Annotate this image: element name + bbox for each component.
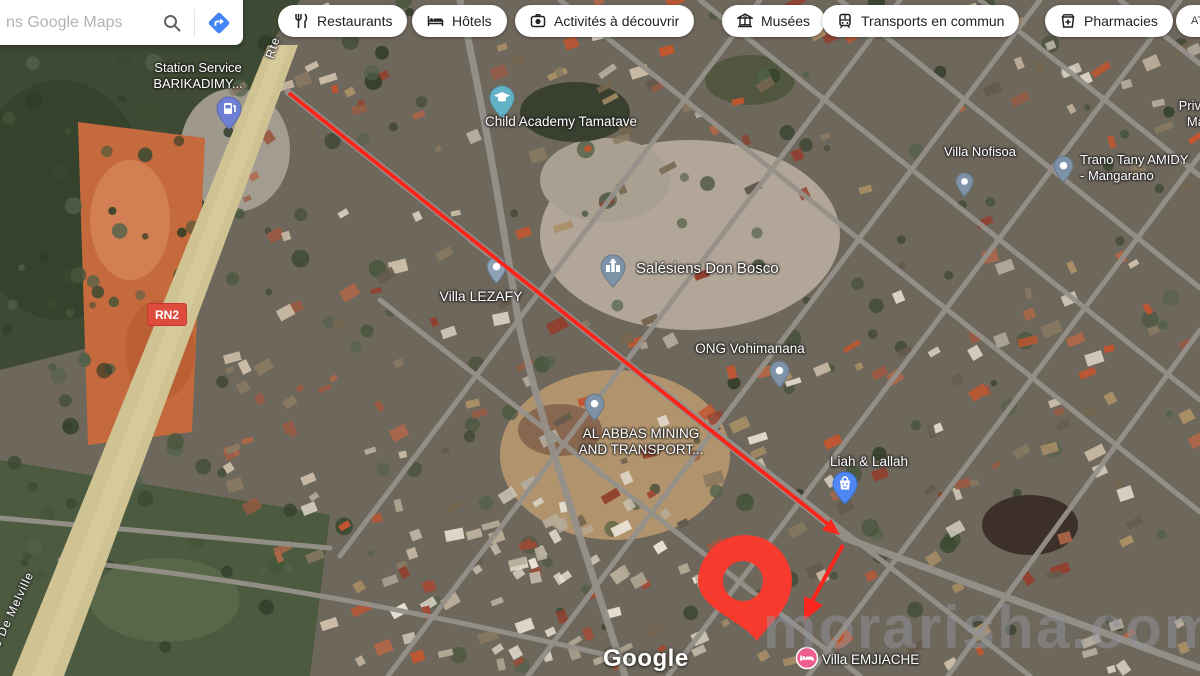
poi-label: Mahat (1187, 114, 1200, 129)
satellite-map-canvas[interactable] (0, 0, 1200, 676)
generic-pin-icon[interactable] (486, 256, 507, 285)
chip-label: Musées (761, 13, 810, 29)
poi-label: Private S (1179, 98, 1200, 113)
poi-salesiens-don-bosco[interactable]: Salésiens Don Bosco (636, 260, 779, 278)
poi-label: Child Academy Tamatave (485, 114, 637, 129)
chip-label: Transports en commun (861, 13, 1004, 29)
poi-liah-lallah[interactable]: Liah & Lallah (830, 454, 908, 470)
hotel-icon (427, 13, 444, 29)
poi-label: AND TRANSPORT... (579, 442, 704, 457)
chip-museums[interactable]: M Musées (722, 5, 825, 37)
chip-activities[interactable]: Activités à découvrir (515, 5, 694, 37)
poi-label: Liah & Lallah (830, 454, 908, 469)
restaurant-icon (293, 13, 309, 29)
shopping-pin-icon[interactable] (832, 471, 858, 505)
chip-hotels[interactable]: Hôtels (412, 5, 507, 37)
generic-pin-icon[interactable] (955, 172, 974, 198)
poi-trano-tany[interactable]: Trano Tany AMIDY - Mangarano (1080, 152, 1188, 183)
directions-icon[interactable] (205, 9, 233, 37)
poi-villa-nofisoa[interactable]: Villa Nofisoa (944, 144, 1016, 160)
chip-label: Activités à découvrir (554, 13, 679, 29)
google-logo: Google (603, 645, 689, 673)
generic-pin-icon[interactable] (1053, 155, 1074, 184)
pharmacy-icon (1060, 13, 1076, 29)
museum-icon: M (737, 13, 753, 29)
fuel-station-pin-icon[interactable] (216, 96, 242, 130)
poi-villa-lezafy[interactable]: Villa LEZAFY (440, 288, 523, 305)
chip-label: AT (1191, 15, 1200, 27)
generic-pin-icon[interactable] (584, 393, 605, 422)
poi-label: Villa Nofisoa (944, 144, 1016, 159)
chip-restaurants[interactable]: Restaurants (278, 5, 407, 37)
poi-ong-vohimanana[interactable]: ONG Vohimanana (695, 341, 805, 357)
poi-label: AL ABBAS MINING (583, 426, 700, 441)
poi-label: - Mangarano (1080, 168, 1154, 183)
watermark: morarisha.com (763, 593, 1200, 662)
chip-transit[interactable]: Transports en commun (822, 5, 1019, 37)
transit-icon (837, 13, 853, 29)
chip-pharmacies[interactable]: Pharmacies (1045, 5, 1173, 37)
poi-private-school[interactable]: Private S Mahat (1140, 98, 1200, 129)
poi-label: Villa LEZAFY (440, 288, 523, 304)
poi-al-abbas[interactable]: AL ABBAS MINING AND TRANSPORT... (579, 426, 704, 458)
poi-label: Station Service (154, 60, 241, 75)
poi-label: Trano Tany AMIDY (1080, 152, 1188, 167)
poi-child-academy[interactable]: Child Academy Tamatave (485, 114, 637, 130)
search-icon[interactable] (162, 13, 182, 33)
chip-label: Pharmacies (1084, 13, 1158, 29)
poi-label: BARIKADIMY... (153, 76, 242, 91)
camera-icon (530, 13, 546, 29)
rn2-route-badge: RN2 (147, 303, 187, 326)
rn2-badge-text: RN2 (155, 308, 179, 322)
poi-label: ONG Vohimanana (695, 341, 805, 356)
search-input[interactable]: ns Google Maps (6, 14, 162, 32)
divider (194, 9, 195, 37)
generic-pin-icon[interactable] (769, 360, 790, 389)
chip-label: Hôtels (452, 13, 492, 29)
poi-label: Salésiens Don Bosco (636, 260, 779, 277)
search-bar[interactable]: ns Google Maps (0, 0, 243, 45)
chip-partial-atms[interactable]: AT (1176, 5, 1200, 37)
google-maps-window: Rte Rte De Melville RN2 (0, 0, 1200, 676)
poi-station-service[interactable]: Station Service BARIKADIMY... (153, 60, 242, 91)
church-pin-icon[interactable] (600, 254, 626, 288)
chip-label: Restaurants (317, 13, 392, 29)
